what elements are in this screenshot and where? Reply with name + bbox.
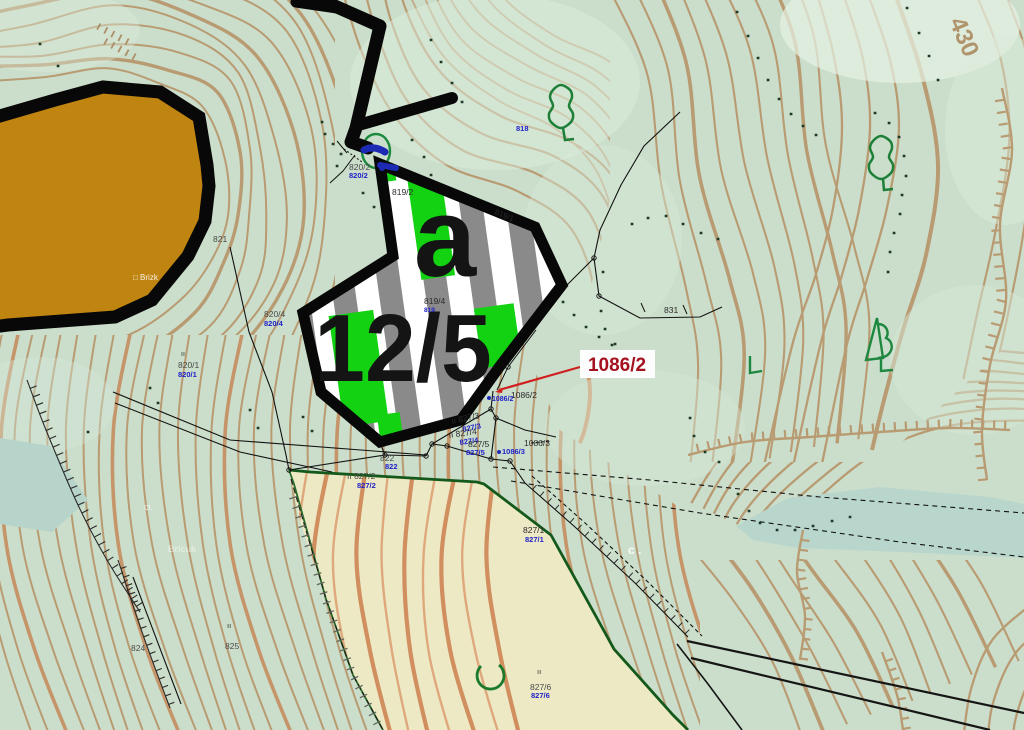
svg-text:1086/2: 1086/2 bbox=[492, 396, 514, 403]
svg-text:ıı: ıı bbox=[181, 351, 185, 358]
svg-text:□ Brizk: □ Brizk bbox=[133, 273, 159, 282]
svg-text:ıı 827/2: ıı 827/2 bbox=[347, 471, 376, 481]
svg-text:1086/2: 1086/2 bbox=[511, 390, 537, 400]
svg-text:1086/3: 1086/3 bbox=[502, 447, 525, 456]
svg-text:a: a bbox=[414, 175, 477, 300]
svg-text:1086/3: 1086/3 bbox=[524, 438, 550, 448]
svg-text:827/1: 827/1 bbox=[525, 535, 544, 544]
svg-text:821: 821 bbox=[213, 234, 227, 244]
svg-text:825: 825 bbox=[225, 641, 239, 651]
svg-text:820/1: 820/1 bbox=[178, 360, 200, 370]
svg-text:827/1: 827/1 bbox=[523, 525, 545, 535]
svg-text:1086/2: 1086/2 bbox=[588, 355, 646, 376]
svg-text:c .: c . bbox=[628, 543, 641, 557]
svg-text:827/5: 827/5 bbox=[466, 448, 485, 457]
svg-text:820/1: 820/1 bbox=[178, 370, 197, 379]
svg-text:12/5: 12/5 bbox=[314, 294, 492, 402]
svg-text:ıı: ıı bbox=[537, 667, 541, 676]
svg-text:819/2: 819/2 bbox=[392, 187, 414, 197]
svg-text:827/2: 827/2 bbox=[357, 481, 376, 490]
svg-text:820/4: 820/4 bbox=[264, 319, 284, 328]
svg-text:818: 818 bbox=[516, 124, 529, 133]
svg-text:827/6: 827/6 bbox=[531, 691, 550, 700]
svg-text:824: 824 bbox=[131, 643, 145, 653]
svg-text:831: 831 bbox=[664, 305, 678, 315]
svg-text:ıı: ıı bbox=[227, 621, 231, 630]
svg-text:820/2: 820/2 bbox=[349, 171, 368, 180]
svg-text:ci.: ci. bbox=[144, 502, 153, 512]
svg-text:820/4: 820/4 bbox=[264, 309, 286, 319]
svg-text:Bricuk: Bricuk bbox=[168, 544, 197, 554]
svg-text:819: 819 bbox=[424, 307, 435, 314]
svg-text:822: 822 bbox=[385, 462, 398, 471]
svg-text:819/4: 819/4 bbox=[424, 296, 446, 306]
